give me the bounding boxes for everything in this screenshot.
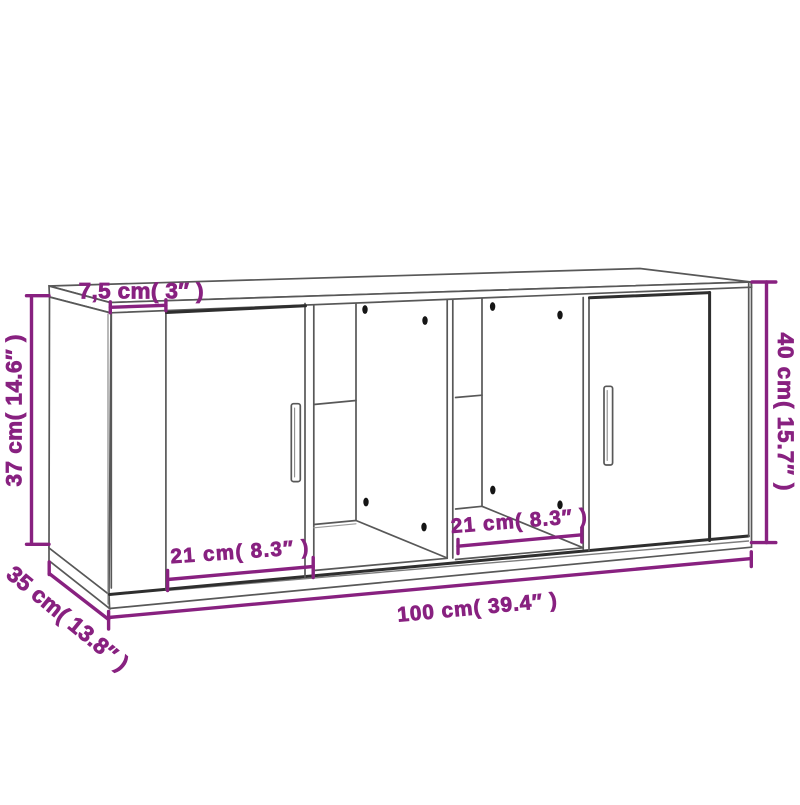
svg-text:37 cm( 14.6″ ): 37 cm( 14.6″ ) xyxy=(1,335,26,487)
svg-text:40 cm( 15.7″ ): 40 cm( 15.7″ ) xyxy=(773,333,798,491)
svg-text:7,5 cm( 3″ ): 7,5 cm( 3″ ) xyxy=(79,279,204,304)
